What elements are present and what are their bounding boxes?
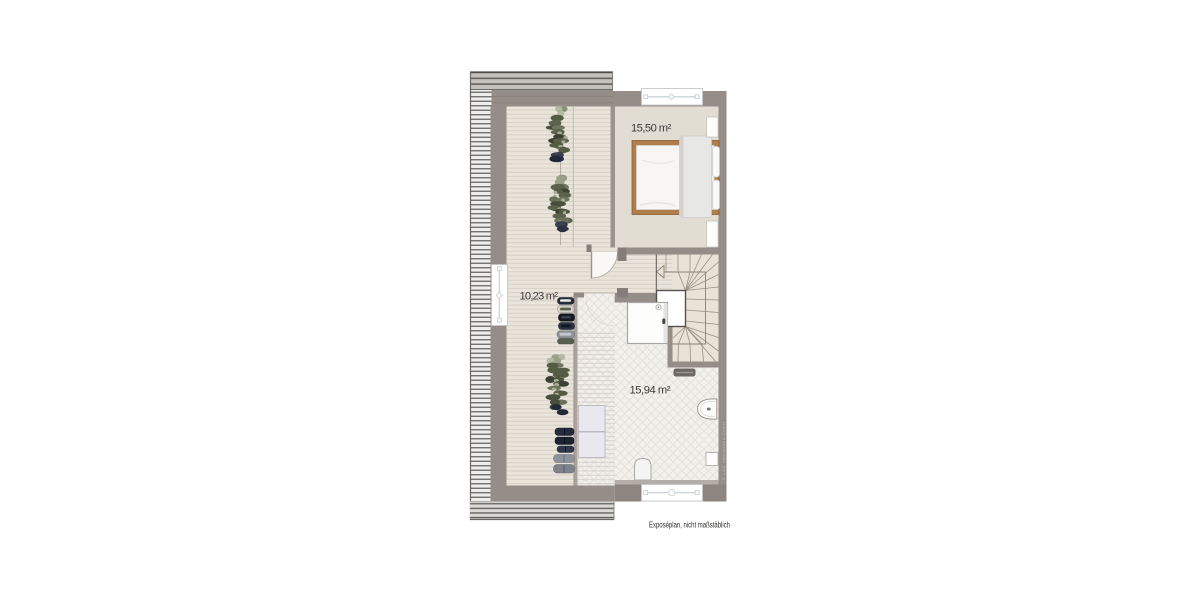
svg-text:Exposéplan, nicht maßstäblich: Exposéplan, nicht maßstäblich — [649, 521, 730, 530]
svg-text:15,94 m²: 15,94 m² — [630, 385, 671, 397]
svg-text:© LBS Immobilien GmbH: © LBS Immobilien GmbH — [721, 422, 726, 480]
svg-text:10,23 m²: 10,23 m² — [520, 291, 559, 303]
svg-text:15,50 m²: 15,50 m² — [631, 123, 672, 135]
